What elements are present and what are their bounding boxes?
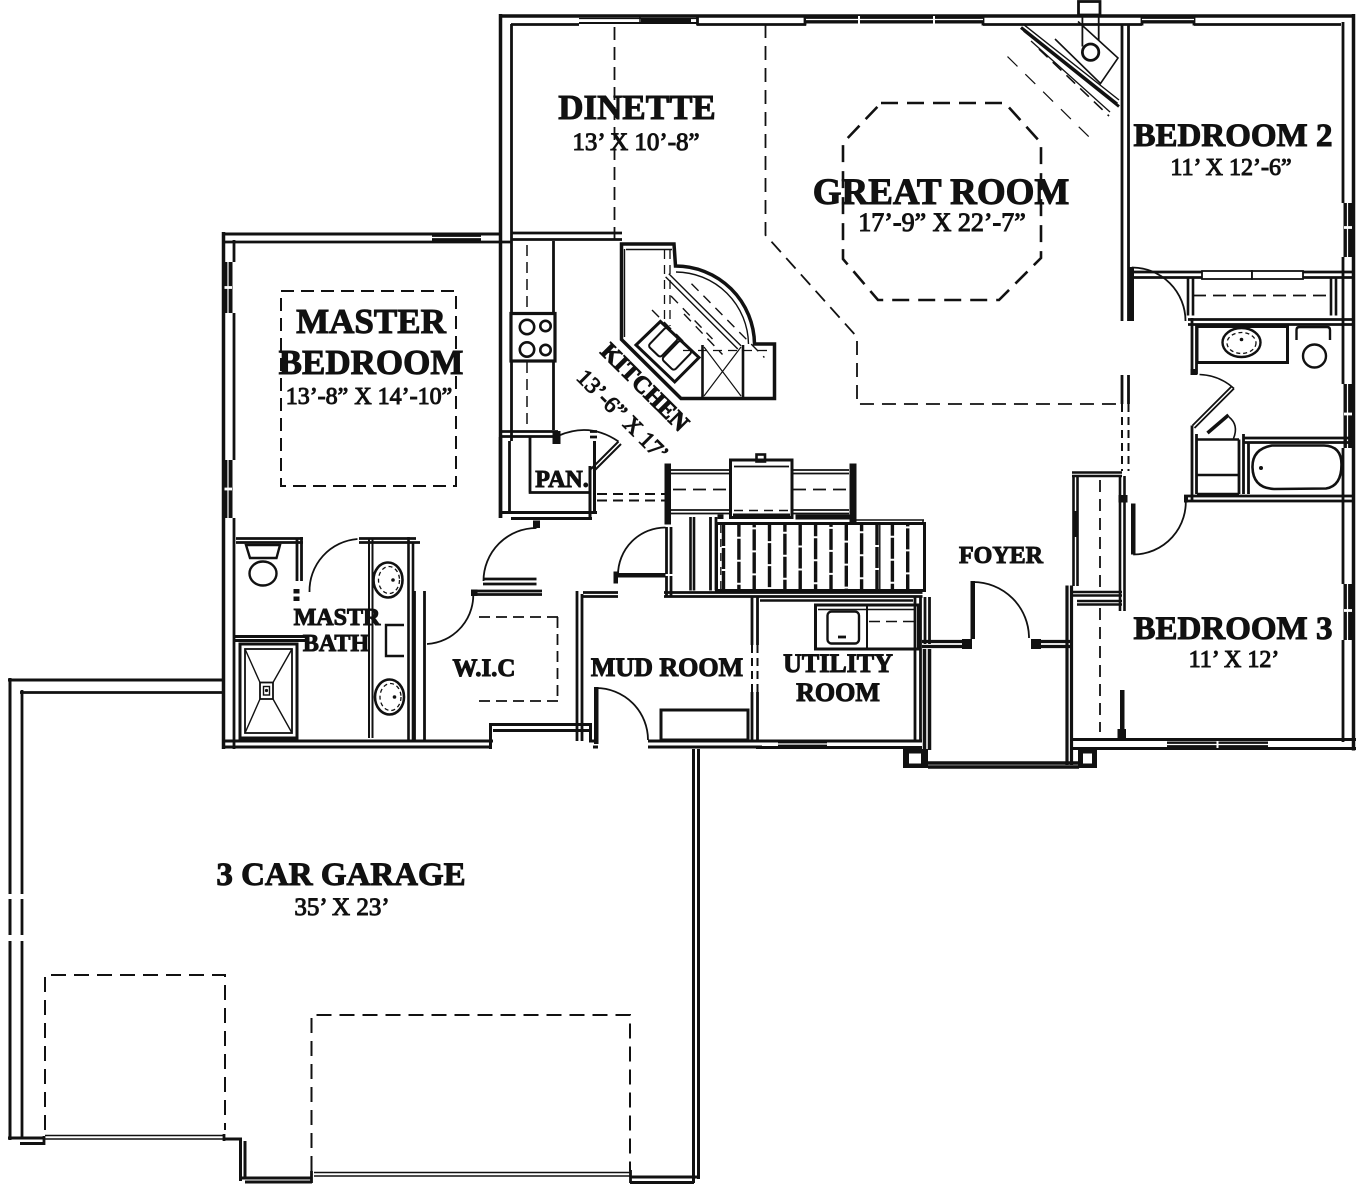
svg-text:BEDROOM 3: BEDROOM 3: [1134, 611, 1333, 647]
svg-text:3 CAR GARAGE: 3 CAR GARAGE: [216, 857, 465, 893]
svg-text:BEDROOM 2: BEDROOM 2: [1134, 118, 1333, 154]
svg-text:FOYER: FOYER: [959, 543, 1044, 569]
svg-text:BATH: BATH: [303, 631, 370, 657]
svg-text:11’ X 12’: 11’ X 12’: [1189, 647, 1280, 673]
svg-text:MASTER: MASTER: [296, 302, 446, 341]
svg-text:11’ X 12’-6”: 11’ X 12’-6”: [1170, 155, 1291, 181]
svg-text:GREAT ROOM: GREAT ROOM: [813, 172, 1070, 213]
svg-text:PAN.: PAN.: [535, 467, 589, 493]
svg-text:35’ X 23’: 35’ X 23’: [294, 894, 389, 921]
svg-text:MUD ROOM: MUD ROOM: [591, 653, 743, 682]
svg-text:13’ X 10’-8”: 13’ X 10’-8”: [572, 129, 699, 156]
svg-text:13’-8” X 14’-10”: 13’-8” X 14’-10”: [286, 384, 453, 410]
svg-text:DINETTE: DINETTE: [558, 88, 716, 127]
svg-text:W.I.C: W.I.C: [453, 655, 516, 682]
svg-text:UTILITY: UTILITY: [783, 649, 893, 678]
svg-text:17’-9” X 22’-7”: 17’-9” X 22’-7”: [858, 208, 1026, 237]
svg-text:MASTR: MASTR: [294, 605, 381, 631]
svg-text:BEDROOM: BEDROOM: [279, 343, 464, 382]
svg-text:ROOM: ROOM: [796, 678, 880, 707]
